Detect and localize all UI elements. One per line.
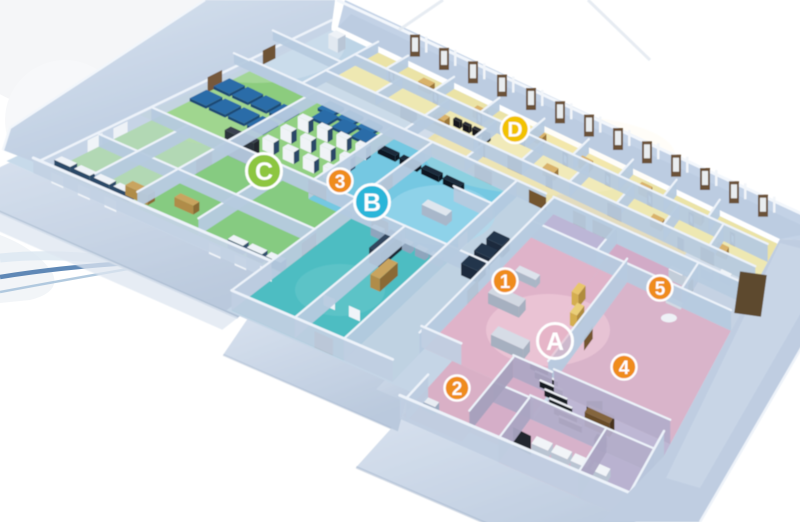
svg-text:D: D: [507, 119, 522, 142]
svg-text:3: 3: [335, 172, 346, 193]
svg-text:A: A: [546, 328, 564, 356]
svg-text:2: 2: [452, 379, 463, 400]
svg-text:5: 5: [655, 279, 666, 300]
svg-text:B: B: [363, 189, 381, 217]
svg-text:C: C: [255, 158, 273, 186]
svg-text:1: 1: [500, 272, 511, 293]
svg-text:4: 4: [619, 358, 630, 379]
